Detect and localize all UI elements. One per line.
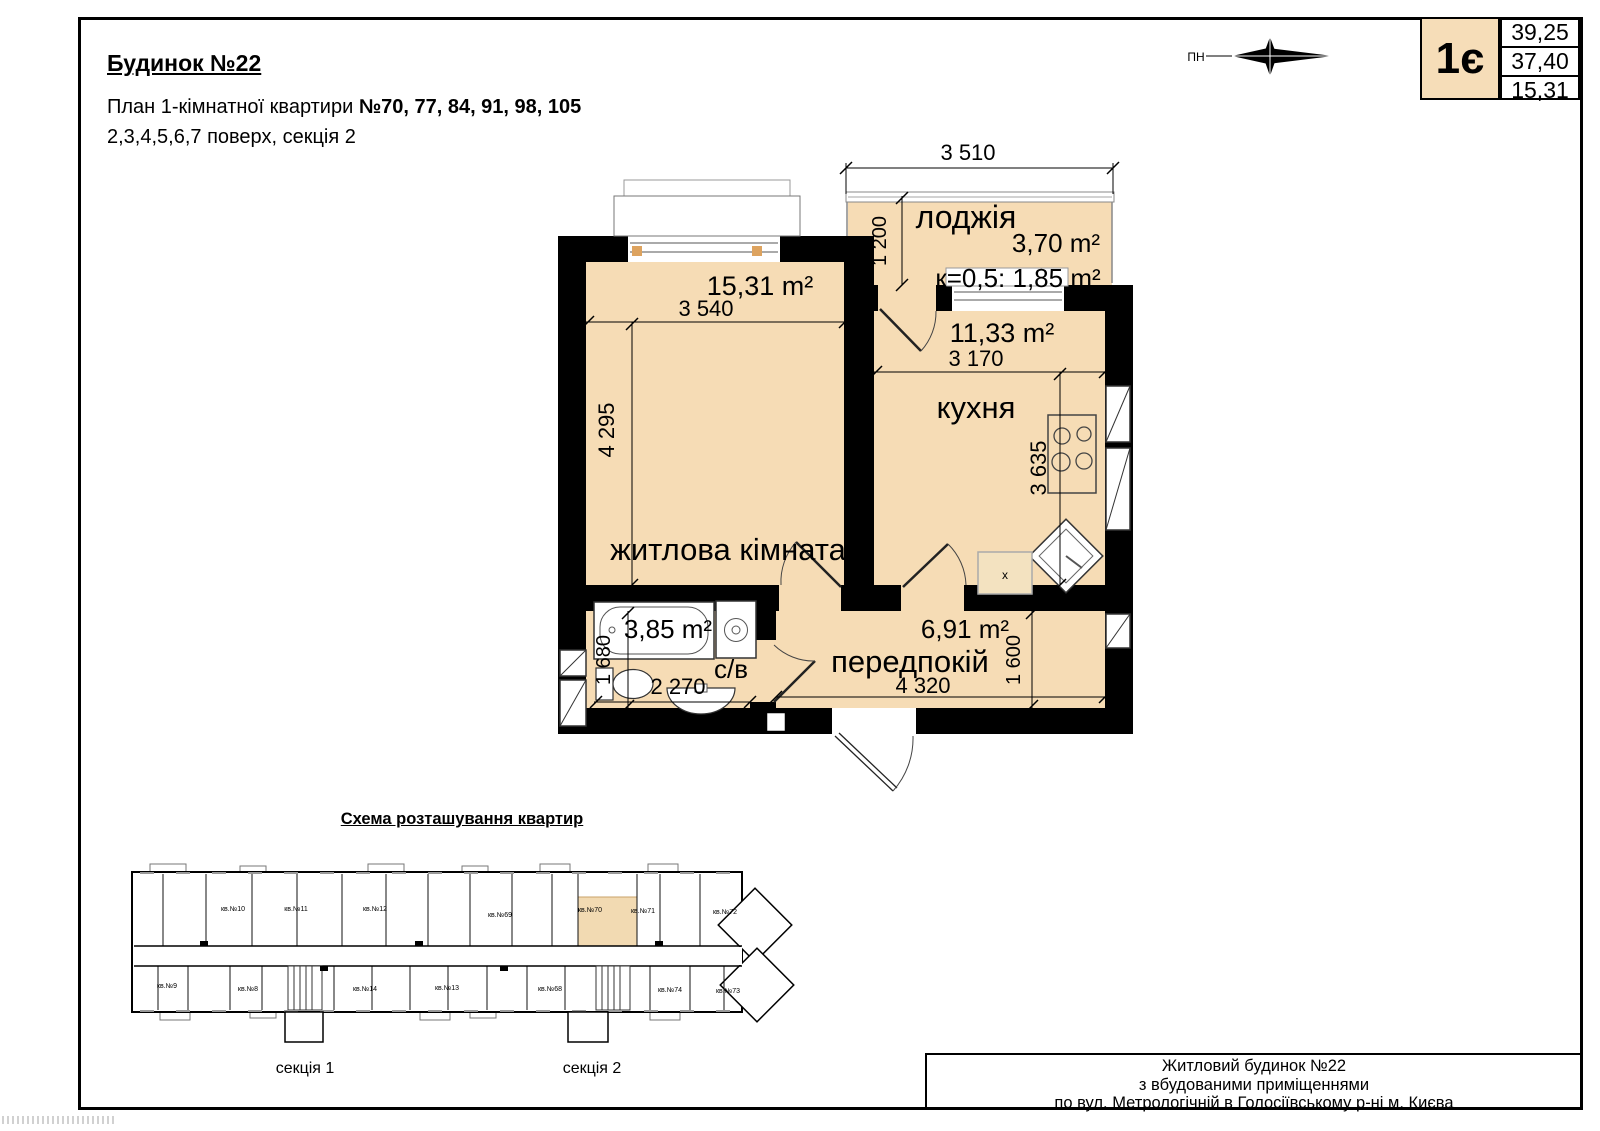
wall-living-kitchen — [844, 311, 874, 585]
apt-label: кв.№73 — [716, 988, 740, 995]
floor-plan: x — [558, 140, 1133, 791]
location-schema: кв.№10 кв.№11 кв.№12 кв.№69 кв.№70 кв.№7… — [132, 864, 794, 1042]
apt-label: кв.№72 — [713, 909, 737, 916]
loggia-coefficient: к=0,5: 1,85 m² — [935, 263, 1101, 293]
living-depth-dim: 4 295 — [594, 402, 619, 457]
entrance-shaft — [766, 712, 786, 732]
window-marker-left — [632, 246, 642, 256]
title-block-line1: Житловий будинок №22 — [927, 1057, 1581, 1076]
watermark — [2, 1116, 114, 1124]
compass-north-label: ПН — [1187, 50, 1204, 64]
living-window-outer — [614, 196, 800, 236]
apt-label: кв.№8 — [238, 986, 258, 993]
section1-label: секція 1 — [245, 1060, 365, 1078]
loggia-depth-dim: 1 200 — [869, 216, 891, 266]
kitchen-width-dim: 3 170 — [948, 346, 1003, 371]
kitchen-label: кухня — [937, 390, 1016, 425]
entrance-door-leaf2 — [839, 733, 897, 788]
loggia-width-dim: 3 510 — [940, 140, 995, 165]
apt-label: кв.№71 — [631, 908, 655, 915]
loggia-label: лоджія — [916, 199, 1017, 235]
apt-label: кв.№11 — [284, 906, 308, 913]
compass: ПН — [1187, 37, 1333, 76]
loggia-area: 3,70 m² — [1012, 228, 1100, 258]
title-block-line2: з вбудованими приміщеннями — [927, 1076, 1581, 1095]
apt-label: кв.№14 — [353, 986, 377, 993]
apt-label: кв.№68 — [538, 986, 562, 993]
bathroom-area: 3,85 m² — [624, 614, 712, 644]
living-window-sill — [624, 180, 790, 196]
living-label: житлова кімната — [610, 532, 847, 567]
bathroom-depth-dim: 1 680 — [593, 635, 615, 685]
hallway-label: передпокій — [831, 644, 989, 679]
section2-label: секція 2 — [532, 1060, 652, 1078]
schema-title: Схема розташування квартир — [338, 810, 586, 829]
drawing-layer: ПН — [0, 0, 1600, 1131]
bathroom-width-dim: 2 270 — [650, 674, 705, 699]
schema-porch-section2 — [568, 1012, 608, 1042]
hallway-area: 6,91 m² — [921, 614, 1009, 644]
title-block-line3: по вул. Метрологічній в Голосіївському р… — [927, 1094, 1581, 1113]
apt-label-highlighted: кв.№70 — [578, 907, 602, 914]
entrance-door-arc — [893, 736, 913, 791]
washing-machine — [716, 601, 756, 658]
schema-porch-section1 — [285, 1012, 323, 1042]
title-block: Житловий будинок №22 з вбудованими примі… — [925, 1053, 1583, 1110]
apt-label: кв.№9 — [157, 983, 177, 990]
living-area: 15,31 m² — [707, 271, 814, 301]
apt-label: кв.№69 — [488, 912, 512, 919]
apt-label: кв.№74 — [658, 987, 682, 994]
apt-label: кв.№12 — [363, 906, 387, 913]
schema-highlight-apartment-70 — [578, 897, 637, 946]
sheet: Будинок №22 План 1-кімнатної квартири №7… — [0, 0, 1600, 1131]
kitchen-depth-dim: 3 635 — [1026, 440, 1051, 495]
window-marker-right — [752, 246, 762, 256]
cabinet-mark: x — [1002, 568, 1008, 582]
bathroom-label: с/в — [714, 654, 748, 684]
schema-corridor — [138, 947, 742, 965]
apt-label: кв.№13 — [435, 985, 459, 992]
apt-label: кв.№10 — [221, 906, 245, 913]
kitchen-area: 11,33 m² — [950, 318, 1055, 348]
entrance-door-leaf — [835, 736, 893, 791]
